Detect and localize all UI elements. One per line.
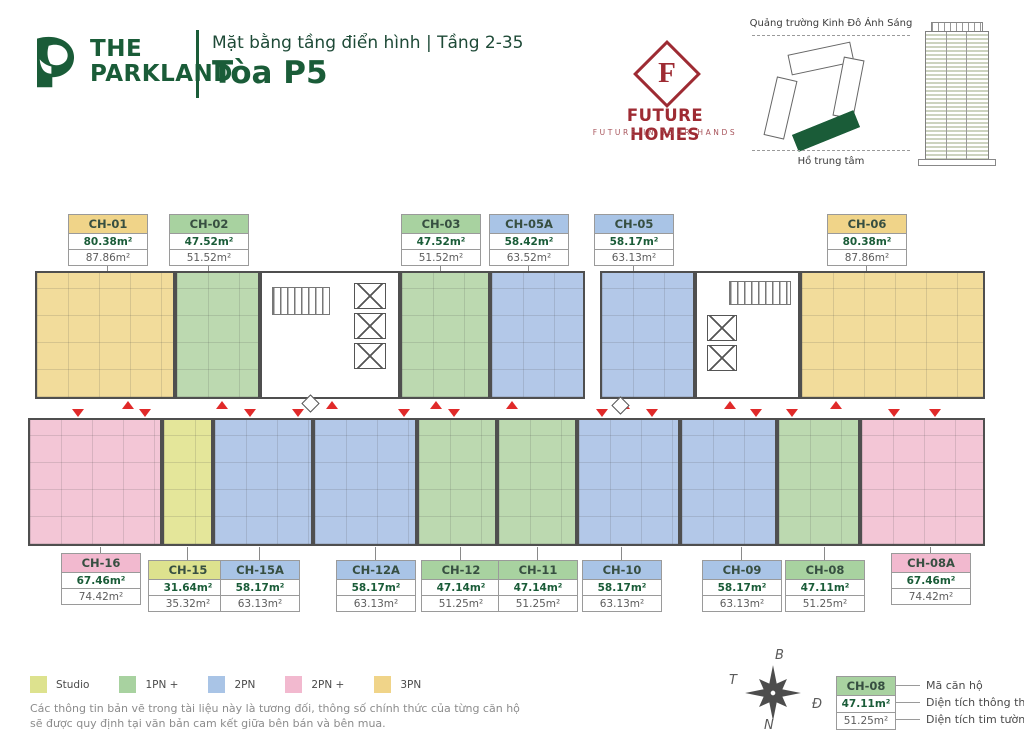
unit-tag-ch15: CH-15 31.64m² 35.32m² (148, 560, 228, 612)
unit-area-net: 47.52m² (170, 233, 248, 249)
entry-arrow-down (448, 409, 460, 417)
apartment-ch11 (497, 418, 577, 546)
elevator (707, 315, 737, 341)
entry-arrow-up (430, 401, 442, 409)
unit-tag-ch12a: CH-12A 58.17m² 63.13m² (336, 560, 416, 612)
unit-code: CH-02 (170, 215, 248, 233)
unit-tag-ch03: CH-03 47.52m² 51.52m² (401, 214, 481, 266)
unit-tag-ch12: CH-12 47.14m² 51.25m² (421, 560, 501, 612)
unit-code: CH-10 (583, 561, 661, 579)
2pn-swatch (208, 676, 225, 693)
unit-area-gross: 87.86m² (828, 249, 906, 265)
core-stairs-lifts-left (260, 271, 400, 399)
unit-tag-ch08a: CH-08A 67.46m² 74.42m² (891, 553, 971, 605)
apartment-ch08 (777, 418, 860, 546)
key-label-code: Mã căn hộ (926, 679, 983, 692)
page-title: Tòa P5 (212, 55, 328, 91)
entry-arrow-up (122, 401, 134, 409)
entry-arrow-up (326, 401, 338, 409)
tag-connector (460, 547, 461, 560)
unit-area-net: 58.42m² (490, 233, 568, 249)
unit-code: CH-15A (221, 561, 299, 579)
unit-area-gross: 63.13m² (583, 595, 661, 611)
apartment-ch09 (680, 418, 777, 546)
parkland-brand: THE PARKLAND (28, 34, 233, 90)
key-label-gross: Diện tích tim tường (926, 713, 1024, 726)
unit-code: CH-06 (828, 215, 906, 233)
unit-tag-ch02: CH-02 47.52m² 51.52m² (169, 214, 249, 266)
apartment-ch08a (860, 418, 985, 546)
entry-arrow-down (596, 409, 608, 417)
tag-connector (187, 547, 188, 560)
disclaimer-line-2: sẽ được quy định tại văn bản cam kết giữ… (30, 717, 386, 730)
key-area-net: 47.11m² (837, 695, 895, 712)
apartment-ch10 (577, 418, 680, 546)
tower-elevation (925, 31, 989, 161)
site-building-outline-3 (764, 76, 798, 139)
key-label-net: Diện tích thông thủy (926, 696, 1024, 709)
apartment-ch01 (35, 271, 175, 399)
future-homes-name: FUTURE HOMES (590, 106, 740, 144)
key-area-gross: 51.25m² (837, 712, 895, 729)
legend-item-1pn: 1PN + (119, 676, 178, 693)
legend-item-3pn: 3PN (374, 676, 421, 693)
unit-code: CH-09 (703, 561, 781, 579)
unit-code: CH-08A (892, 554, 970, 572)
unit-area-gross: 63.52m² (490, 249, 568, 265)
unit-code: CH-11 (499, 561, 577, 579)
unit-area-net: 58.17m² (337, 579, 415, 595)
entry-arrow-down (929, 409, 941, 417)
apartment-ch15 (162, 418, 213, 546)
key-callout-line (896, 719, 920, 720)
unit-tag-ch15a: CH-15A 58.17m² 63.13m² (220, 560, 300, 612)
entry-arrow-down (646, 409, 658, 417)
unit-area-gross: 63.13m² (703, 595, 781, 611)
entry-arrow-up (216, 401, 228, 409)
apartment-ch16 (28, 418, 162, 546)
unit-area-net: 80.38m² (69, 233, 147, 249)
elevator (707, 345, 737, 371)
unit-area-net: 58.17m² (583, 579, 661, 595)
studio-swatch (30, 676, 47, 693)
elevator (354, 343, 386, 369)
unit-area-gross: 51.52m² (402, 249, 480, 265)
unit-code: CH-16 (62, 554, 140, 572)
unit-area-net: 47.52m² (402, 233, 480, 249)
unit-code: CH-12A (337, 561, 415, 579)
entry-arrow-down (750, 409, 762, 417)
unit-tag-ch11: CH-11 47.14m² 51.25m² (498, 560, 578, 612)
key-unit-code: CH-08 (837, 677, 895, 695)
site-map-boundary-top (752, 35, 910, 36)
unit-area-gross: 51.25m² (422, 595, 500, 611)
tag-key-box: CH-08 47.11m² 51.25m² (836, 676, 896, 730)
unit-code: CH-03 (402, 215, 480, 233)
stairs (272, 287, 330, 315)
3pn-swatch (374, 676, 391, 693)
entry-arrow-up (724, 401, 736, 409)
tag-connector (741, 547, 742, 560)
1pn-swatch (119, 676, 136, 693)
tower-base (918, 159, 996, 166)
unit-code: CH-05A (490, 215, 568, 233)
unit-area-net: 47.14m² (422, 579, 500, 595)
stairs (729, 281, 791, 305)
parkland-logo-icon (28, 34, 82, 90)
unit-code: CH-01 (69, 215, 147, 233)
header-divider (196, 30, 199, 98)
unit-area-gross: 63.13m² (337, 595, 415, 611)
site-building-p5-highlight (792, 110, 860, 151)
unit-area-net: 58.17m² (595, 233, 673, 249)
key-callout-line (896, 685, 920, 686)
entry-arrow-down (398, 409, 410, 417)
compass-rose-icon (742, 662, 804, 724)
unit-tag-ch09: CH-09 58.17m² 63.13m² (702, 560, 782, 612)
unit-code: CH-08 (786, 561, 864, 579)
2pn-plus-swatch (285, 676, 302, 693)
apartment-ch03 (400, 271, 490, 399)
entry-arrow-down (786, 409, 798, 417)
apartment-ch05 (600, 271, 695, 399)
core-stairs-lifts-right (695, 271, 800, 399)
apartment-ch06 (800, 271, 985, 399)
legend-item-2pn-plus: 2PN + (285, 676, 344, 693)
apartment-ch12a (313, 418, 417, 546)
apartment-ch15a (213, 418, 313, 546)
tag-connector (824, 547, 825, 560)
unit-area-gross: 51.25m² (499, 595, 577, 611)
apartment-ch12 (417, 418, 497, 546)
tag-connector (537, 547, 538, 560)
unit-area-gross: 87.86m² (69, 249, 147, 265)
compass-east: Đ (812, 697, 822, 712)
unit-area-gross: 74.42m² (892, 588, 970, 604)
future-homes-tagline: FUTURE IN YOUR HANDS (590, 128, 740, 137)
site-map-bottom-label: Hồ trung tâm (746, 156, 916, 167)
entry-arrow-down (292, 409, 304, 417)
entry-arrow-down (244, 409, 256, 417)
unit-area-gross: 35.32m² (149, 595, 227, 611)
site-building-outline-2 (832, 57, 864, 120)
page-subtitle: Mặt bằng tầng điển hình | Tầng 2-35 (212, 33, 523, 53)
unit-area-gross: 63.13m² (221, 595, 299, 611)
unit-area-gross: 74.42m² (62, 588, 140, 604)
unit-code: CH-15 (149, 561, 227, 579)
unit-area-net: 31.64m² (149, 579, 227, 595)
unit-code: CH-05 (595, 215, 673, 233)
unit-area-gross: 63.13m² (595, 249, 673, 265)
compass-north: B (775, 648, 784, 663)
unit-area-net: 67.46m² (62, 572, 140, 588)
unit-area-net: 80.38m² (828, 233, 906, 249)
entry-arrow-down (139, 409, 151, 417)
unit-area-net: 67.46m² (892, 572, 970, 588)
future-homes-letter: F (643, 52, 691, 94)
unit-tag-ch06: CH-06 80.38m² 87.86m² (827, 214, 907, 266)
unit-area-gross: 51.25m² (786, 595, 864, 611)
entry-arrow-up (506, 401, 518, 409)
unit-area-net: 47.14m² (499, 579, 577, 595)
unit-tag-ch16: CH-16 67.46m² 74.42m² (61, 553, 141, 605)
unit-tag-ch10: CH-10 58.17m² 63.13m² (582, 560, 662, 612)
entry-arrow-down (888, 409, 900, 417)
tag-connector (375, 547, 376, 560)
entry-arrow-down (72, 409, 84, 417)
compass-west: T (729, 673, 737, 688)
unit-tag-ch08: CH-08 47.11m² 51.25m² (785, 560, 865, 612)
unit-tag-ch05a: CH-05A 58.42m² 63.52m² (489, 214, 569, 266)
unit-tag-ch01: CH-01 80.38m² 87.86m² (68, 214, 148, 266)
entry-arrow-up (830, 401, 842, 409)
site-map-top-label: Quảng trường Kinh Đô Ánh Sáng (746, 18, 916, 29)
tag-connector (259, 547, 260, 560)
compass-south: N (764, 718, 774, 733)
elevator (354, 313, 386, 339)
legend-item-studio: Studio (30, 676, 89, 693)
disclaimer-line-1: Các thông tin bản vẽ trong tài liệu này … (30, 702, 520, 715)
unit-area-net: 58.17m² (703, 579, 781, 595)
tag-connector (621, 547, 622, 560)
floorplan-poster: THE PARKLAND Mặt bằng tầng điển hình | T… (0, 0, 1024, 751)
unit-type-legend: Studio 1PN + 2PN 2PN + 3PN (30, 676, 451, 693)
legend-item-2pn: 2PN (208, 676, 255, 693)
apartment-ch02 (175, 271, 260, 399)
lobby-marker-icon (611, 396, 629, 414)
key-callout-line (896, 702, 920, 703)
unit-area-gross: 51.52m² (170, 249, 248, 265)
elevator (354, 283, 386, 309)
unit-area-net: 47.11m² (786, 579, 864, 595)
unit-area-net: 58.17m² (221, 579, 299, 595)
site-map-boundary-bottom (752, 150, 910, 151)
unit-tag-ch05: CH-05 58.17m² 63.13m² (594, 214, 674, 266)
unit-code: CH-12 (422, 561, 500, 579)
apartment-ch05a (490, 271, 585, 399)
